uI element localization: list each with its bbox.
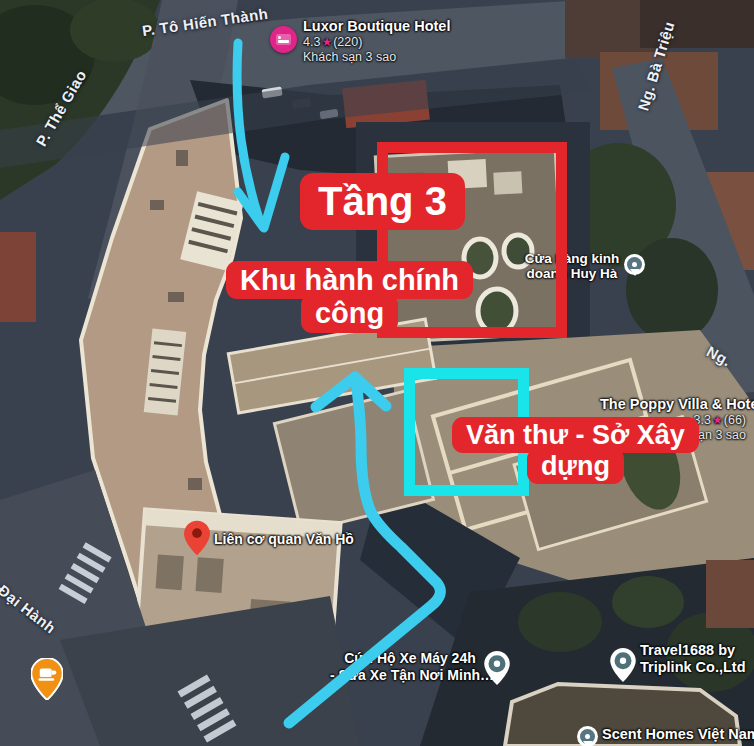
star-icon: ★ (711, 413, 724, 427)
annotation-floor-label: Tầng 3 (300, 173, 465, 230)
pin-dot (585, 734, 590, 739)
white-poi-pin-icon[interactable] (610, 648, 636, 682)
satellite-imagery (0, 0, 754, 746)
poi-name[interactable]: Luxor Boutique Hotel (303, 18, 450, 35)
poi-name-line1[interactable]: Travel1688 by (640, 642, 746, 659)
annotation-text: Tầng 3 (300, 173, 465, 230)
bed-icon (276, 34, 291, 45)
poi-cuu-ho-xe-may[interactable]: Cứu Hộ Xe Máy 24h - Sửa Xe Tận Nơi Minh… (330, 650, 490, 684)
generic-poi-pin-icon[interactable] (577, 726, 598, 746)
poi-travel1688[interactable]: Travel1688 by Triplink Co.,Ltd (640, 642, 746, 676)
red-map-pin-icon[interactable] (184, 520, 210, 556)
satellite-map[interactable]: P. Tô Hiến Thành P. Thể Giao Ng. Bà Triệ… (0, 0, 754, 746)
poi-name-line2: - Sửa Xe Tận Nơi Minh… (330, 667, 490, 684)
rating-value: 4.3 (303, 35, 320, 49)
pin-dot (632, 262, 637, 267)
poi-category: Khách sạn 3 sao (303, 50, 450, 65)
star-icon: ★ (320, 35, 333, 49)
poi-scent-homes[interactable]: Scent Homes Việt Nam (602, 726, 754, 743)
poi-rating-row: 4.3★(220) (303, 35, 450, 50)
poi-lien-co-quan[interactable]: Liên cơ quan Văn Hồ (184, 520, 210, 560)
white-poi-pin-icon[interactable] (484, 651, 510, 685)
review-count: (66) (724, 413, 746, 427)
generic-poi-pin-icon[interactable] (624, 254, 645, 275)
review-count: (220) (333, 35, 362, 49)
annotation-vanthu-label: Văn thư - Sở Xây dựng (452, 417, 699, 484)
annotation-text-line2: dựng (527, 448, 624, 484)
poi-name[interactable]: Liên cơ quan Văn Hồ (214, 531, 354, 548)
poi-name-line1: Cứu Hộ Xe Máy 24h (330, 650, 490, 667)
cafe-pin-icon[interactable] (31, 658, 63, 700)
annotation-admin-label: Khu hành chính công (226, 261, 473, 333)
hotel-pin-icon[interactable] (270, 26, 297, 53)
poi-name[interactable]: Scent Homes Việt Nam (602, 726, 754, 743)
pin-inner (580, 729, 595, 744)
poi-name-line2: Triplink Co.,Ltd (640, 659, 746, 676)
annotation-text-line2: công (301, 294, 398, 332)
pin-inner (627, 257, 642, 272)
poi-name[interactable]: The Poppy Villa & Hotel (600, 396, 746, 413)
